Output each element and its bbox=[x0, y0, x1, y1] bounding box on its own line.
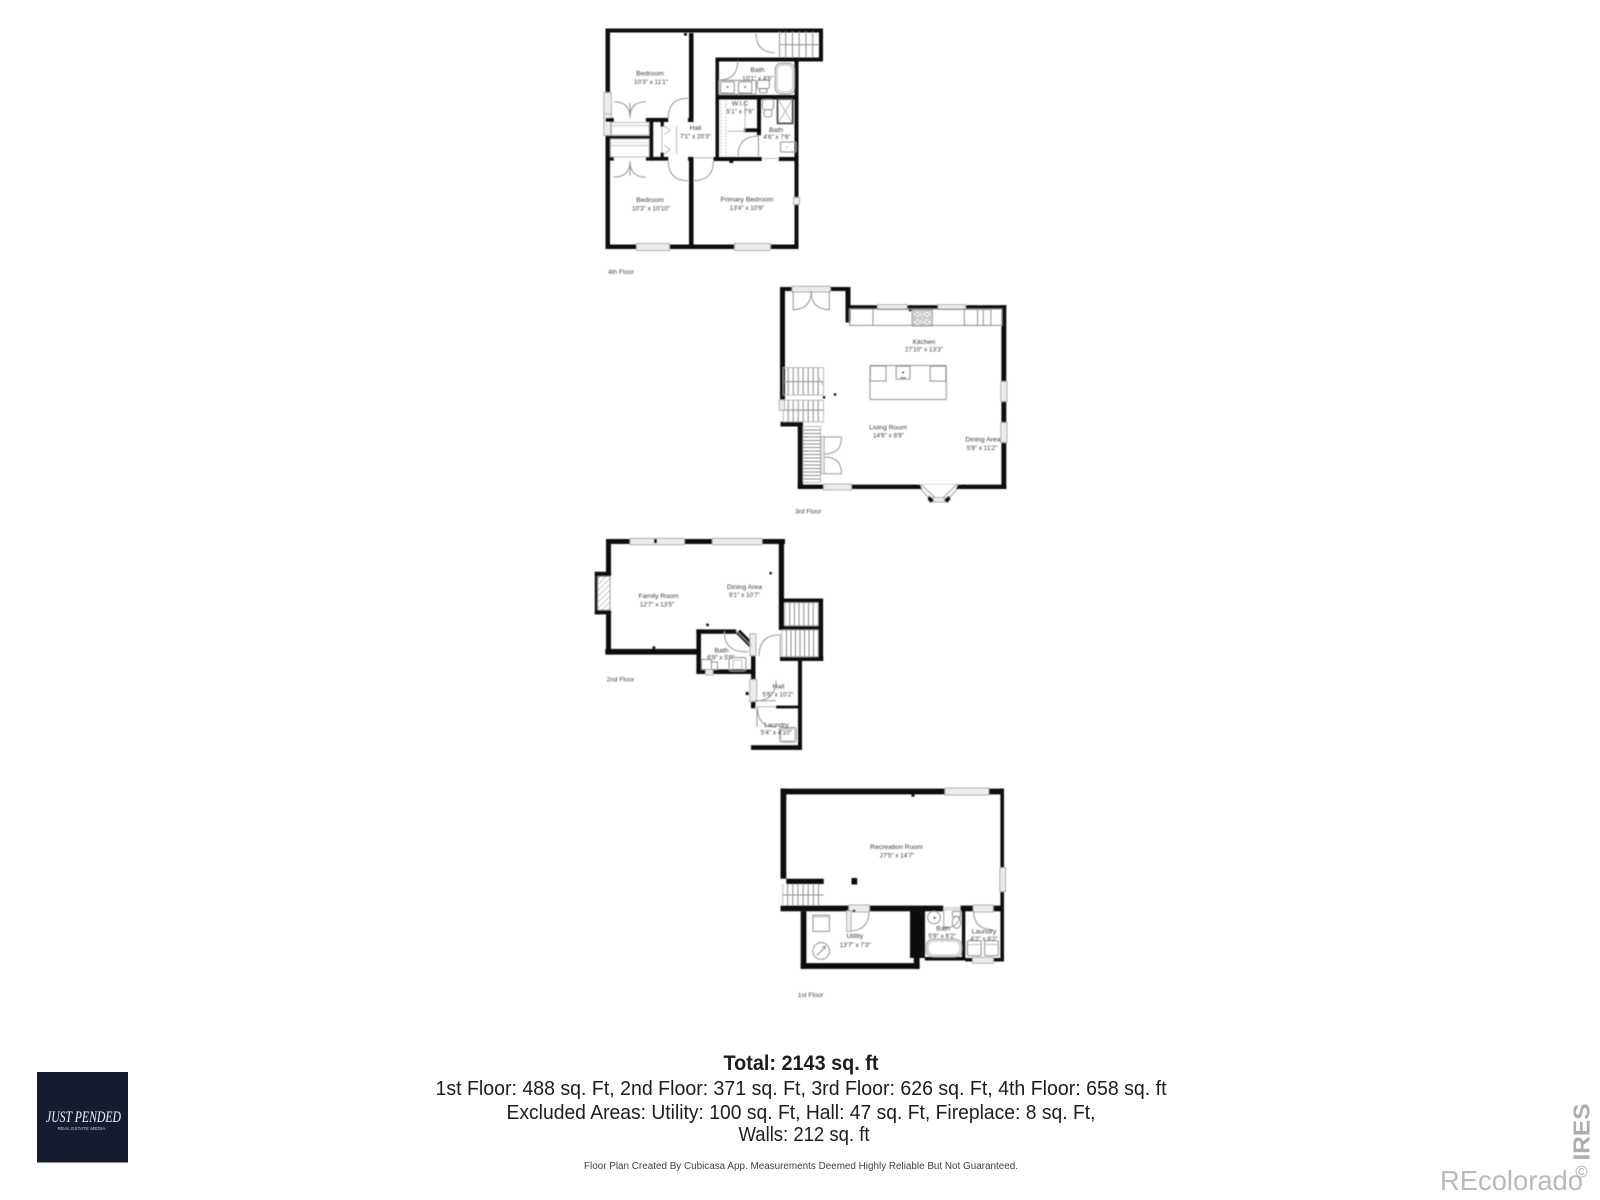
svg-text:1st Floor: 488 sq. Ft, 2nd Flo: 1st Floor: 488 sq. Ft, 2nd Floor: 371 sq… bbox=[436, 1077, 1167, 1100]
svg-text:4'6" x 7'6": 4'6" x 7'6" bbox=[763, 134, 791, 141]
svg-text:REAL ESTATE MEDIA: REAL ESTATE MEDIA bbox=[58, 1126, 106, 1131]
svg-text:Bath: Bath bbox=[936, 925, 950, 932]
svg-text:10'3" x 10'10": 10'3" x 10'10" bbox=[632, 205, 670, 212]
svg-text:Walls: 212 sq. ft: Walls: 212 sq. ft bbox=[739, 1123, 870, 1146]
svg-text:5'4" x 4'10": 5'4" x 4'10" bbox=[761, 730, 792, 737]
svg-text:5'9" x 11'2": 5'9" x 11'2" bbox=[967, 445, 998, 452]
svg-text:Floor Plan Created By Cubicasa: Floor Plan Created By Cubicasa App. Meas… bbox=[584, 1161, 1018, 1172]
svg-text:9'1" x 10'7": 9'1" x 10'7" bbox=[729, 592, 760, 599]
svg-text:Total: 2143 sq. ft: Total: 2143 sq. ft bbox=[724, 1051, 879, 1075]
svg-text:12'7" x 13'5": 12'7" x 13'5" bbox=[640, 602, 675, 609]
svg-text:Laundry: Laundry bbox=[764, 722, 789, 729]
svg-text:13'7" x 7'3": 13'7" x 7'3" bbox=[840, 942, 871, 949]
svg-text:Living Room: Living Room bbox=[869, 424, 907, 431]
svg-text:Bath: Bath bbox=[769, 127, 783, 134]
svg-text:7'1" x 20'3": 7'1" x 20'3" bbox=[680, 134, 711, 141]
svg-text:Kitchen: Kitchen bbox=[913, 339, 936, 346]
svg-text:Bedroom: Bedroom bbox=[636, 71, 664, 78]
svg-text:5'9" x 6'2": 5'9" x 6'2" bbox=[928, 933, 956, 940]
svg-text:3rd Floor: 3rd Floor bbox=[795, 509, 822, 516]
svg-text:W.I.C: W.I.C bbox=[732, 101, 749, 108]
svg-text:Bedroom: Bedroom bbox=[636, 197, 664, 204]
svg-text:2nd Floor: 2nd Floor bbox=[607, 677, 636, 684]
svg-text:1st Floor: 1st Floor bbox=[798, 992, 824, 999]
svg-text:6'9" x 5'0": 6'9" x 5'0" bbox=[707, 655, 735, 662]
svg-text:5'6" x 10'2": 5'6" x 10'2" bbox=[762, 691, 793, 698]
svg-text:©: © bbox=[1575, 1164, 1587, 1182]
svg-text:10'1" x 4'6": 10'1" x 4'6" bbox=[742, 75, 773, 82]
svg-text:Bath: Bath bbox=[751, 67, 765, 74]
svg-text:27'5" x 14'7": 27'5" x 14'7" bbox=[880, 853, 915, 860]
svg-text:Dining Area: Dining Area bbox=[727, 584, 762, 591]
svg-text:Excluded Areas: Utility: 100 s: Excluded Areas: Utility: 100 sq. Ft, Hal… bbox=[507, 1101, 1096, 1124]
svg-text:IRES: IRES bbox=[1569, 1104, 1595, 1161]
svg-text:10'3" x 11'1": 10'3" x 11'1" bbox=[634, 79, 668, 86]
svg-text:Family Room: Family Room bbox=[638, 593, 678, 600]
svg-text:REcolorado: REcolorado bbox=[1440, 1165, 1583, 1196]
svg-text:Hall: Hall bbox=[690, 125, 702, 132]
svg-text:27'10" x 13'3": 27'10" x 13'3" bbox=[905, 347, 943, 354]
svg-text:5'1" x 7'6": 5'1" x 7'6" bbox=[727, 108, 755, 115]
svg-text:14'6" x 8'9": 14'6" x 8'9" bbox=[873, 432, 904, 439]
svg-text:Laundry: Laundry bbox=[972, 928, 997, 935]
svg-text:JUST PENDED: JUST PENDED bbox=[46, 1109, 121, 1126]
svg-text:Hall: Hall bbox=[773, 683, 785, 690]
svg-text:Primary Bedroom: Primary Bedroom bbox=[721, 197, 774, 204]
svg-text:Recreation Room: Recreation Room bbox=[870, 844, 923, 851]
svg-text:4'2" x 6'2": 4'2" x 6'2" bbox=[970, 936, 998, 943]
svg-text:Dining Area: Dining Area bbox=[965, 437, 1000, 444]
svg-text:Utility: Utility bbox=[846, 933, 863, 940]
svg-text:13'4" x 10'9": 13'4" x 10'9" bbox=[730, 205, 765, 212]
svg-text:4th Floor: 4th Floor bbox=[608, 269, 635, 276]
